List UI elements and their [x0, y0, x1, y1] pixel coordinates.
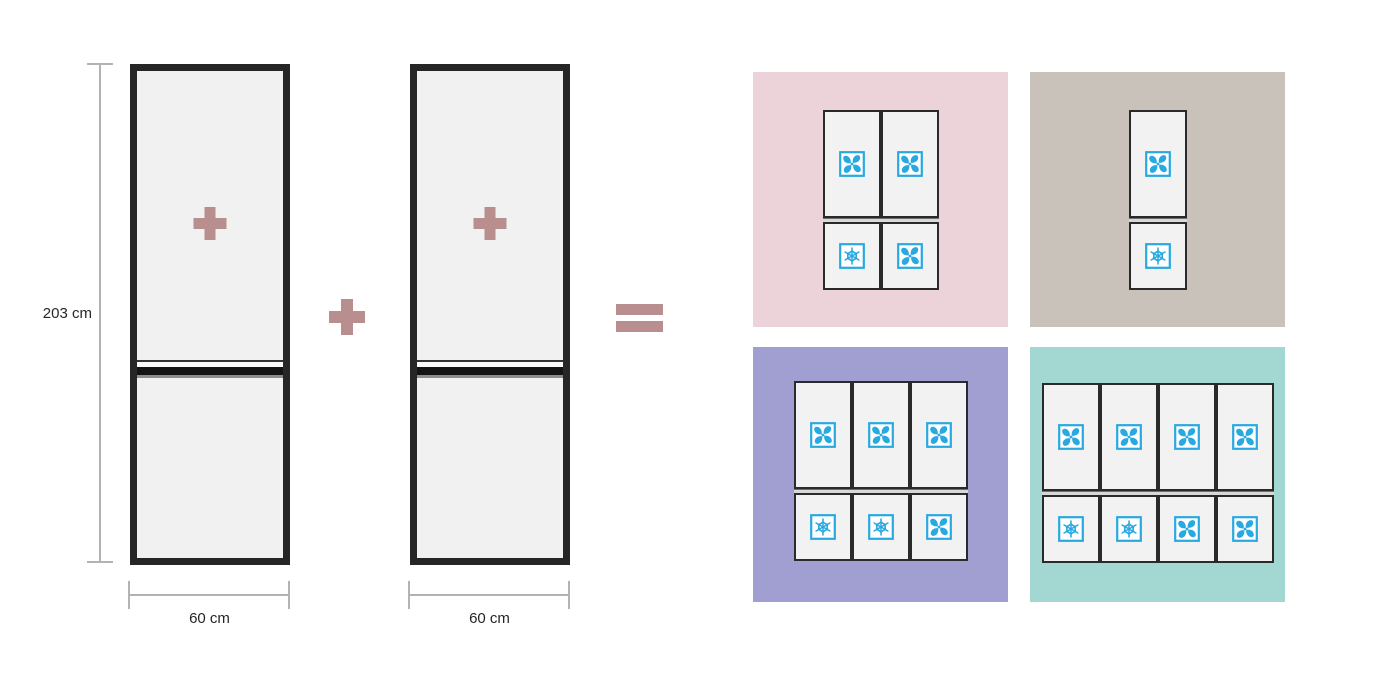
upper-door [881, 110, 939, 218]
width-dimension-line-right [409, 594, 570, 596]
fan-icon [1174, 516, 1200, 542]
width-dimension-label-left: 60 cm [129, 610, 290, 627]
upper-door [1216, 383, 1274, 491]
fridge-column [794, 381, 852, 561]
fridge-column [910, 381, 968, 561]
plus-icon [474, 207, 507, 240]
fridge-column [1100, 383, 1158, 563]
lower-door [1100, 495, 1158, 563]
height-dimension-label: 203 cm [20, 305, 92, 322]
result-panel-four-column [1030, 347, 1285, 602]
fridge-column [1042, 383, 1100, 563]
upper-door [794, 381, 852, 489]
fan-icon [897, 151, 923, 177]
plus-operator-icon [329, 299, 365, 335]
lower-door [910, 493, 968, 561]
snowflake-icon [1145, 243, 1171, 269]
lower-door [823, 222, 881, 290]
height-dimension-line [99, 64, 101, 562]
width-dimension-cap [408, 581, 410, 609]
upper-door [1042, 383, 1100, 491]
snowflake-icon [1058, 516, 1084, 542]
lower-door [1042, 495, 1100, 563]
height-dimension-cap-bottom [87, 561, 113, 563]
panel-fridge [1042, 383, 1274, 563]
width-dimension-line-left [129, 594, 290, 596]
lower-door [1129, 222, 1187, 290]
width-dimension-cap [288, 581, 290, 609]
upper-door [1100, 383, 1158, 491]
fan-icon [1058, 424, 1084, 450]
upper-door [823, 110, 881, 218]
fridge-column [881, 110, 939, 290]
upper-door [910, 381, 968, 489]
fan-icon [839, 151, 865, 177]
fan-icon [1232, 424, 1258, 450]
plus-icon [194, 207, 227, 240]
fan-icon [810, 422, 836, 448]
fridge-column [852, 381, 910, 561]
lower-door [1158, 495, 1216, 563]
snowflake-icon [839, 243, 865, 269]
result-panel-one-column [1030, 72, 1285, 327]
fan-icon [926, 514, 952, 540]
width-dimension-label-right: 60 cm [409, 610, 570, 627]
fan-icon [1232, 516, 1258, 542]
lower-door [794, 493, 852, 561]
fridge-column [1158, 383, 1216, 563]
lower-door [852, 493, 910, 561]
fan-icon [897, 243, 923, 269]
lower-door [881, 222, 939, 290]
snowflake-icon [868, 514, 894, 540]
upper-door [1129, 110, 1187, 218]
panel-fridge [1129, 110, 1187, 290]
lower-door [1216, 495, 1274, 563]
fridge-column [1216, 383, 1274, 563]
snowflake-icon [810, 514, 836, 540]
equals-operator-icon [616, 304, 663, 332]
fan-icon [926, 422, 952, 448]
width-dimension-cap [568, 581, 570, 609]
fan-icon [1145, 151, 1171, 177]
fridge-column [1129, 110, 1187, 290]
width-dimension-cap [128, 581, 130, 609]
fridge-left [130, 64, 290, 565]
fridge-door-divider [137, 360, 283, 378]
result-panel-three-column [753, 347, 1008, 602]
result-panel-two-column [753, 72, 1008, 327]
fan-icon [1174, 424, 1200, 450]
height-dimension-cap-top [87, 63, 113, 65]
panel-fridge [823, 110, 939, 290]
upper-door [1158, 383, 1216, 491]
fridge-column [823, 110, 881, 290]
fan-icon [868, 422, 894, 448]
fridge-door-divider [417, 360, 563, 378]
panel-fridge [794, 381, 968, 561]
snowflake-icon [1116, 516, 1142, 542]
fridge-right [410, 64, 570, 565]
fan-icon [1116, 424, 1142, 450]
fridge-combination-diagram: 203 cm 60 cm 60 cm [0, 0, 1400, 675]
upper-door [852, 381, 910, 489]
